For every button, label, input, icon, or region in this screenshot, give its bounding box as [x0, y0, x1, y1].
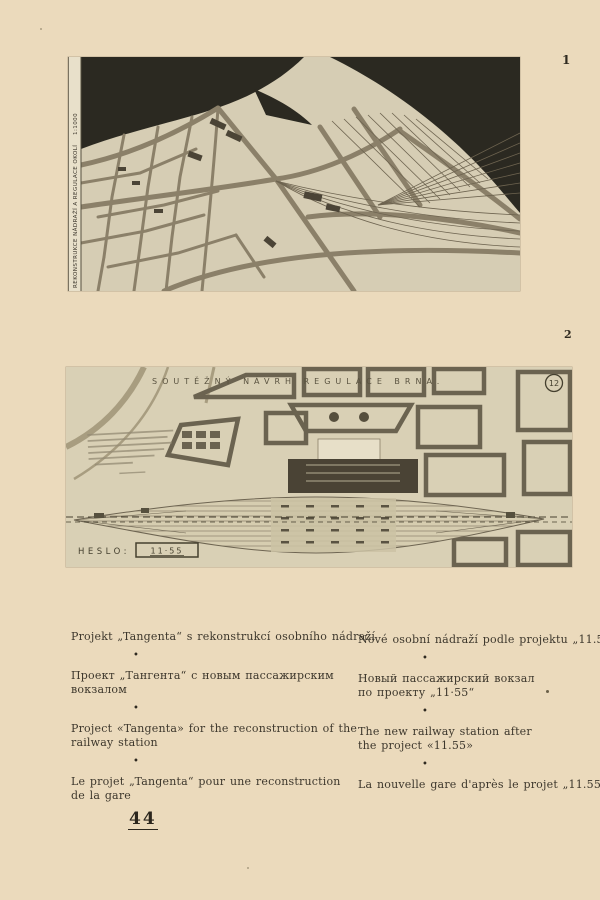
caption-line: Новый пассажирский вокзал — [358, 672, 586, 687]
caption-line: de la gare — [71, 789, 371, 804]
caption-czech-left: Projekt „Tangenta“ s rekonstrukcí osobní… — [71, 630, 371, 645]
caption-russian-left: Проект „Тангента“ с новым пассажирским в… — [71, 669, 371, 698]
caption-french-right: La nouvelle gare d'après le projet „11.5… — [358, 778, 586, 793]
caption-line: Проект „Тангента“ с новым пассажирским — [71, 669, 371, 684]
caption-line: La nouvelle gare d'après le projet „11.5… — [358, 778, 586, 793]
caption-separator: • — [422, 760, 586, 770]
captions-right-column: Nové osobní nádraží podle projektu „11.5… — [358, 633, 586, 798]
plaza-circle-left — [329, 412, 339, 422]
caption-czech-right: Nové osobní nádraží podle projektu „11.5… — [358, 633, 586, 648]
caption-separator: • — [133, 704, 371, 714]
page-number: 44 — [128, 811, 158, 830]
plaza-circle-right — [359, 412, 369, 422]
paper-speck — [546, 690, 549, 693]
caption-line: по проекту „11·55“ — [358, 686, 586, 701]
caption-russian-right: Новый пассажирский вокзал по проекту „11… — [358, 672, 586, 701]
caption-line: railway station — [71, 736, 371, 751]
caption-separator: • — [422, 654, 586, 664]
figure2-map-image: SOUTĚŽNÝ NÁVRH REGULACE BRNA. 12 HESLO: … — [66, 367, 572, 567]
caption-french-left: Le projet „Tangenta“ pour une reconstruc… — [71, 775, 371, 804]
caption-line: Project «Tangenta» for the reconstructio… — [71, 722, 371, 737]
caption-line: вокзалом — [71, 683, 371, 698]
figure2-plan-drawing: SOUTĚŽNÝ NÁVRH REGULACE BRNA. 12 HESLO: … — [66, 367, 572, 567]
caption-separator: • — [133, 757, 371, 767]
caption-line: the project «11.55» — [358, 739, 586, 754]
captions-left-column: Projekt „Tangenta“ s rekonstrukcí osobní… — [71, 630, 371, 810]
caption-english-right: The new railway station after the projec… — [358, 725, 586, 754]
figure2-badge-number: 12 — [549, 379, 559, 388]
figure-number-1: 1 — [562, 54, 570, 66]
station-forecourt-building — [318, 439, 380, 461]
caption-line: The new railway station after — [358, 725, 586, 740]
motto-label: HESLO: — [78, 547, 130, 557]
caption-separator: • — [422, 707, 586, 717]
scanned-book-page: REKONSTRUKCE NÁDRAŽÍ A REGULACE OKOLÍ 1:… — [0, 0, 600, 900]
figure1-map-image: REKONSTRUKCE NÁDRAŽÍ A REGULACE OKOLÍ 1:… — [68, 57, 520, 291]
figure2-title: SOUTĚŽNÝ NÁVRH REGULACE BRNA. — [152, 375, 444, 386]
paper-speck — [40, 28, 42, 30]
caption-english-left: Project «Tangenta» for the reconstructio… — [71, 722, 371, 751]
caption-line: Le projet „Tangenta“ pour une reconstruc… — [71, 775, 371, 790]
station-building — [288, 459, 418, 493]
figure1-side-label: REKONSTRUKCE NÁDRAŽÍ A REGULACE OKOLÍ — [71, 145, 79, 288]
caption-separator: • — [133, 651, 371, 661]
motto-value: 11·55 — [151, 547, 184, 556]
figure1-plan-drawing: REKONSTRUKCE NÁDRAŽÍ A REGULACE OKOLÍ 1:… — [68, 57, 520, 291]
caption-line: Nové osobní nádraží podle projektu „11.5… — [358, 633, 586, 648]
paper-speck — [247, 867, 249, 869]
caption-line: Projekt „Tangenta“ s rekonstrukcí osobní… — [71, 630, 371, 645]
figure-number-2: 2 — [564, 329, 572, 340]
figure1-scale-label: 1:1000 — [73, 113, 79, 135]
